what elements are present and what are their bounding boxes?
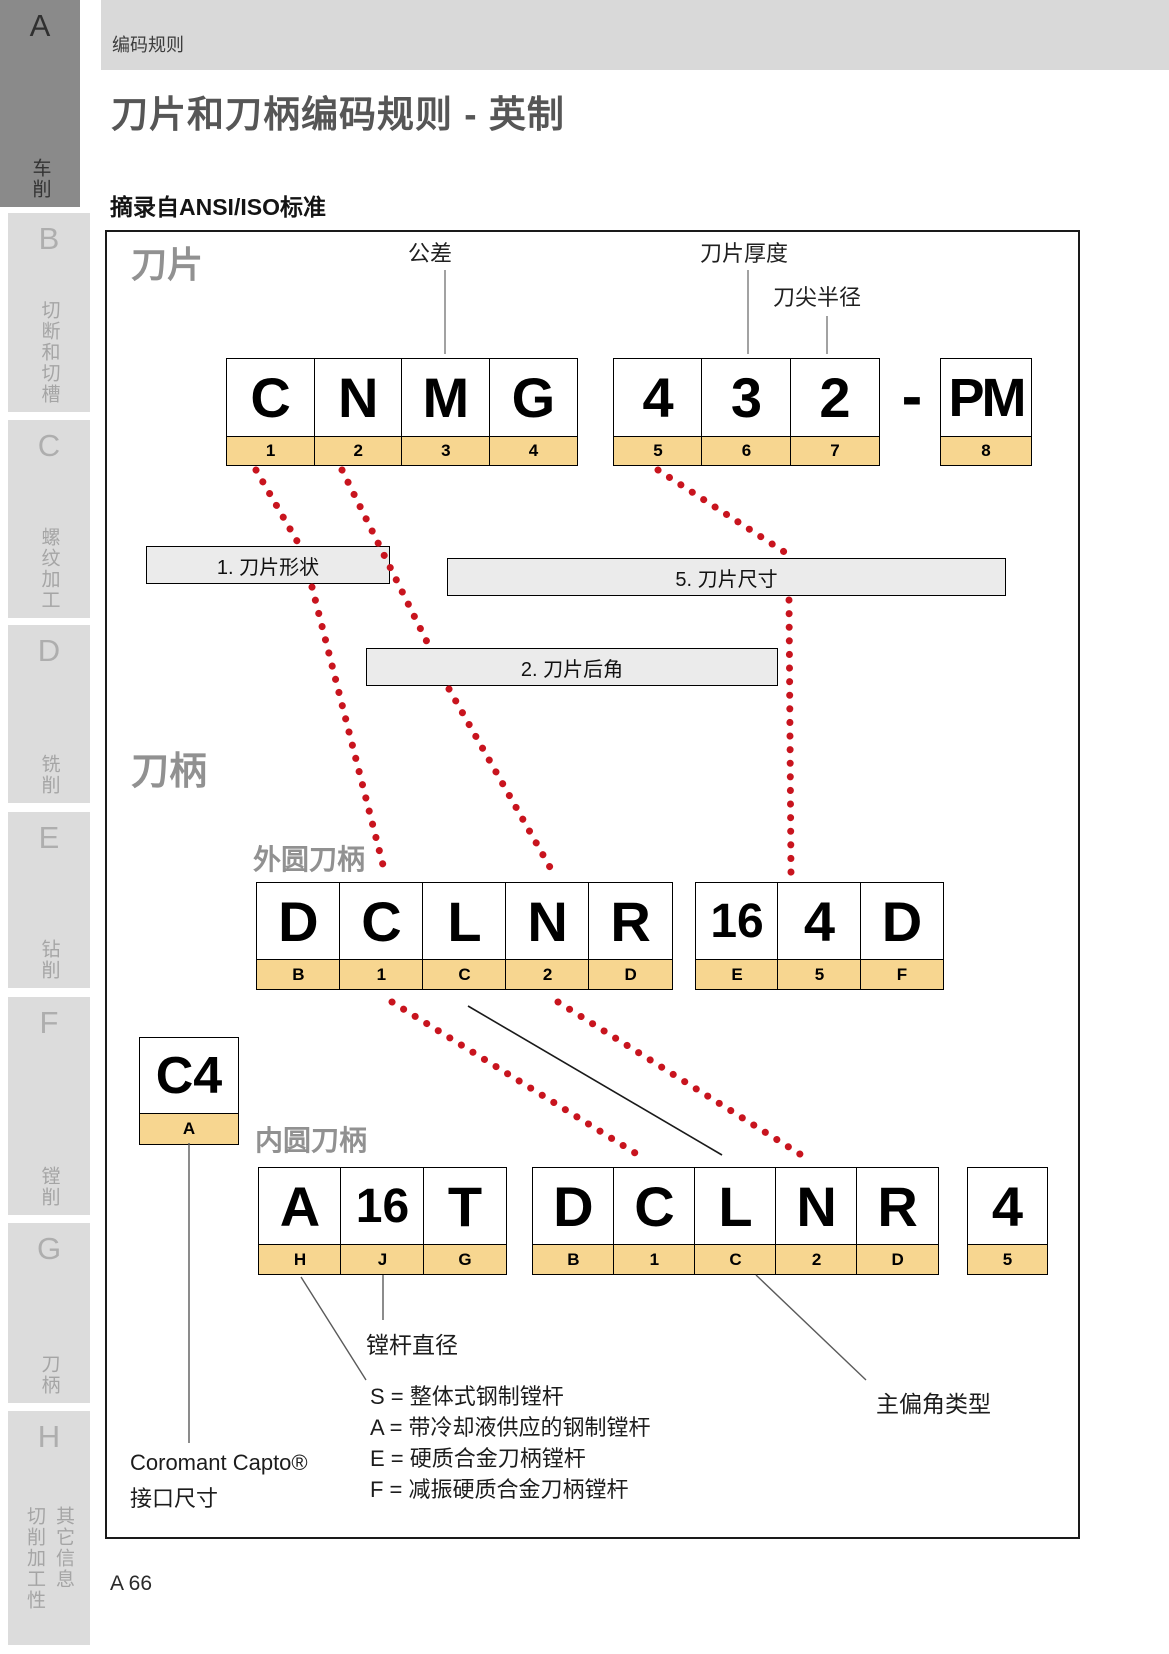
insert-section-label: 刀片 (131, 236, 203, 288)
insert-code-group-size: 4 5 3 6 2 7 (613, 358, 880, 466)
code-char: A (259, 1168, 341, 1245)
sidebar-label-line2: 其它信息 (50, 1506, 77, 1611)
internal-holder-label: 内圆刀柄 (255, 1119, 367, 1159)
capto-coupling-label-line2: 接口尺寸 (130, 1481, 218, 1513)
sidebar-label: 切断和切槽 (36, 300, 63, 405)
sidebar-tab-f-boring: F 镗削 (8, 997, 90, 1215)
code-char: 4 (614, 359, 702, 437)
code-tab: E (696, 960, 778, 989)
external-holder-label: 外圆刀柄 (253, 838, 365, 878)
sidebar-letter: A (0, 0, 80, 44)
callout-insert-size: 5. 刀片尺寸 (447, 558, 1006, 596)
code-cell: C4 A (139, 1037, 239, 1145)
code-char: T (424, 1168, 506, 1245)
sidebar-label: 切削加工性 (21, 1506, 48, 1611)
code-cell: N 2 (775, 1167, 858, 1275)
code-cell: N 2 (314, 358, 403, 466)
code-char: G (490, 359, 577, 437)
nose-radius-label: 刀尖半径 (773, 280, 861, 312)
code-cell: 4 5 (967, 1167, 1048, 1275)
code-tab: 7 (791, 437, 879, 465)
code-char: N (506, 883, 589, 960)
code-tab: 3 (402, 437, 489, 465)
sidebar-letter: H (8, 1411, 90, 1455)
code-char: 16 (696, 883, 778, 960)
code-cell: D F (860, 882, 944, 990)
bar-type-legend: S = 整体式钢制镗杆 A = 带冷却液供应的钢制镗杆 E = 硬质合金刀柄镗杆… (370, 1381, 651, 1505)
sidebar-letter: D (8, 625, 90, 669)
code-tab: 2 (315, 437, 402, 465)
code-tab: B (533, 1245, 614, 1274)
code-cell: 3 6 (701, 358, 791, 466)
page-title: 刀片和刀柄编码规则 - 英制 (111, 84, 565, 138)
breadcrumb: 编码规则 (112, 31, 184, 57)
code-cell: R D (856, 1167, 939, 1275)
sidebar-tab-a-turning: A 车削 (0, 0, 80, 207)
code-char: D (861, 883, 943, 960)
code-tab: D (857, 1245, 938, 1274)
code-tab: C (423, 960, 506, 989)
code-char: C (227, 359, 314, 437)
code-tab: 8 (941, 437, 1031, 465)
code-tab: 6 (702, 437, 790, 465)
entering-angle-label: 主偏角类型 (876, 1385, 991, 1419)
code-char: C (614, 1168, 695, 1245)
code-tab: C (695, 1245, 776, 1274)
legend-item-f: F = 减振硬质合金刀柄镗杆 (370, 1474, 651, 1505)
callout-insert-shape: 1. 刀片形状 (146, 546, 390, 584)
code-char: L (695, 1168, 776, 1245)
sidebar-label: 车削 (27, 158, 54, 200)
code-separator-dash: - (884, 358, 940, 435)
tolerance-label: 公差 (408, 236, 452, 268)
code-char: L (423, 883, 506, 960)
callout-insert-clearance: 2. 刀片后角 (366, 648, 778, 686)
sidebar-label: 刀柄 (36, 1354, 63, 1396)
sidebar-letter: E (8, 812, 90, 856)
code-char: M (402, 359, 489, 437)
internal-code-group-size: 4 5 (967, 1167, 1048, 1275)
legend-item-e: E = 硬质合金刀柄镗杆 (370, 1443, 651, 1474)
code-tab: 5 (778, 960, 860, 989)
sidebar-letter: G (8, 1223, 90, 1267)
code-char: C (340, 883, 423, 960)
bar-diameter-label: 镗杆直径 (366, 1326, 458, 1360)
code-tab: 2 (506, 960, 589, 989)
code-cell: 16 J (340, 1167, 424, 1275)
code-cell: 2 7 (790, 358, 880, 466)
code-tab: 5 (614, 437, 702, 465)
code-tab: F (861, 960, 943, 989)
code-tab: 1 (340, 960, 423, 989)
code-tab: D (589, 960, 672, 989)
code-char: R (857, 1168, 938, 1245)
code-cell: 4 5 (777, 882, 861, 990)
sidebar-letter: F (8, 997, 90, 1041)
code-char: 4 (778, 883, 860, 960)
code-cell: C 1 (613, 1167, 696, 1275)
code-cell: T G (423, 1167, 507, 1275)
code-cell: PM 8 (940, 358, 1032, 466)
internal-code-group-bar: A H 16 J T G (258, 1167, 507, 1275)
code-tab: J (341, 1245, 423, 1274)
code-cell: L C (422, 882, 507, 990)
code-cell: 16 E (695, 882, 779, 990)
code-char: 4 (968, 1168, 1047, 1245)
code-tab: 5 (968, 1245, 1047, 1274)
legend-item-s: S = 整体式钢制镗杆 (370, 1381, 651, 1412)
code-tab: B (257, 960, 340, 989)
code-tab: H (259, 1245, 341, 1274)
holder-section-label: 刀柄 (131, 740, 207, 795)
code-cell: D B (532, 1167, 615, 1275)
sidebar-tab-g-toolholding: G 刀柄 (8, 1223, 90, 1403)
sidebar-label: 钻削 (36, 939, 63, 981)
code-cell: C 1 (226, 358, 315, 466)
sidebar-label: 镗削 (36, 1166, 63, 1208)
code-char: 16 (341, 1168, 423, 1245)
code-char: PM (941, 359, 1031, 437)
code-cell: M 3 (401, 358, 490, 466)
code-cell: 4 5 (613, 358, 703, 466)
code-cell: L C (694, 1167, 777, 1275)
sidebar-tab-d-milling: D 铣削 (8, 625, 90, 803)
insert-code-group-geometry: PM 8 (940, 358, 1032, 466)
code-cell: R D (588, 882, 673, 990)
code-char: N (315, 359, 402, 437)
code-tab: A (140, 1114, 238, 1144)
sidebar-letter: C (8, 420, 90, 464)
sidebar-tab-h-machinability: H 切削加工性 其它信息 (8, 1411, 90, 1645)
insert-code-group-shape: C 1 N 2 M 3 G 4 (226, 358, 578, 466)
code-cell: C 1 (339, 882, 424, 990)
external-code-group-size: 16 E 4 5 D F (695, 882, 944, 990)
sidebar-tab-e-drilling: E 钻削 (8, 812, 90, 988)
code-char: N (776, 1168, 857, 1245)
code-cell: N 2 (505, 882, 590, 990)
code-cell: G 4 (489, 358, 578, 466)
code-tab: 1 (227, 437, 314, 465)
code-char: C4 (140, 1038, 238, 1114)
sidebar-tab-b-parting-grooving: B 切断和切槽 (8, 213, 90, 412)
sidebar-label: 螺纹加工 (36, 527, 63, 611)
capto-code-group: C4 A (139, 1037, 239, 1145)
code-tab: 4 (490, 437, 577, 465)
code-tab: G (424, 1245, 506, 1274)
code-cell: A H (258, 1167, 342, 1275)
code-char: R (589, 883, 672, 960)
code-char: 2 (791, 359, 879, 437)
sidebar-label: 铣削 (36, 754, 63, 796)
code-char: 3 (702, 359, 790, 437)
code-char: D (257, 883, 340, 960)
thickness-label: 刀片厚度 (700, 236, 788, 268)
sidebar-tab-c-threading: C 螺纹加工 (8, 420, 90, 618)
page-number: A 66 (110, 1572, 152, 1596)
code-tab: 1 (614, 1245, 695, 1274)
external-code-group-style: D B C 1 L C N 2 R D (256, 882, 673, 990)
capto-coupling-label-line1: Coromant Capto® (130, 1450, 308, 1476)
sidebar-letter: B (8, 213, 90, 257)
legend-item-a: A = 带冷却液供应的钢制镗杆 (370, 1412, 651, 1443)
code-cell: D B (256, 882, 341, 990)
internal-code-group-style: D B C 1 L C N 2 R D (532, 1167, 939, 1275)
code-tab: 2 (776, 1245, 857, 1274)
standard-subtitle: 摘录自ANSI/ISO标准 (110, 188, 326, 222)
code-char: D (533, 1168, 614, 1245)
header-band (101, 0, 1169, 70)
